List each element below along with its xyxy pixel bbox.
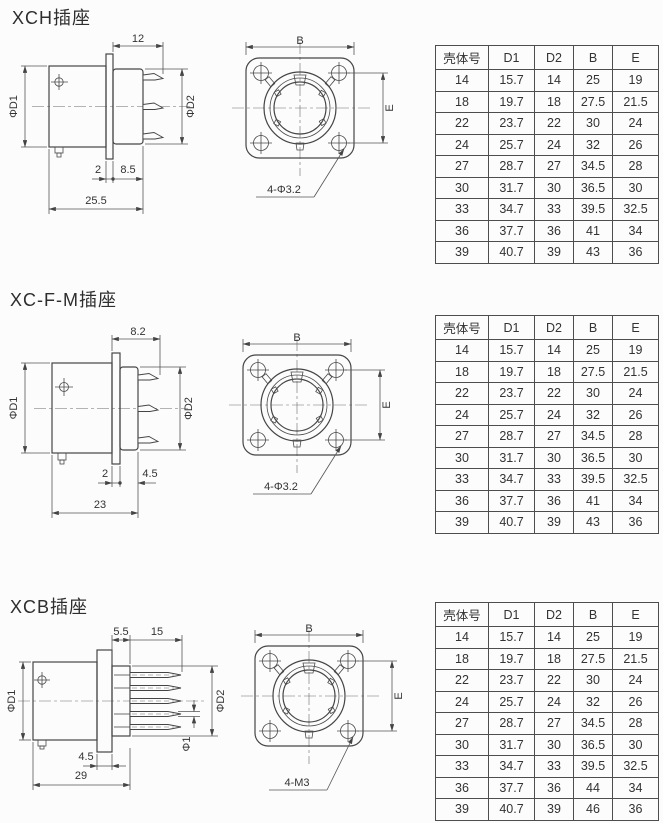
table-cell: 34: [613, 490, 659, 512]
column-header: E: [613, 316, 659, 340]
table-cell: 24: [535, 134, 574, 156]
table-cell: 36.5: [574, 447, 613, 469]
table-cell: 26: [613, 404, 659, 426]
table-row: 2728.72734.528: [436, 156, 659, 178]
table-cell: 23.7: [489, 383, 535, 405]
table-cell: 34.5: [574, 713, 613, 735]
table-cell: 15.7: [489, 340, 535, 362]
dim-d2: ΦD2: [183, 397, 195, 420]
table-cell: 44: [574, 777, 613, 799]
table-header-row: 壳体号D1D2BE: [436, 603, 659, 627]
xcb-dimension-table: 壳体号D1D2BE1415.71425191819.71827.521.5222…: [435, 602, 659, 821]
table-cell: 24: [535, 404, 574, 426]
table-cell: 32.5: [613, 199, 659, 221]
column-header: E: [613, 46, 659, 70]
table-row: 2728.72734.528: [436, 426, 659, 448]
table-row: 2223.7223024: [436, 670, 659, 692]
dim-mounting-holes: 4-Φ3.2: [264, 481, 298, 493]
dim-d2: ΦD2: [215, 690, 227, 713]
table-cell: 21.5: [613, 91, 659, 113]
dim-shell-depth: 12: [132, 33, 144, 45]
table-cell: 24: [436, 691, 489, 713]
dim-flange-thickness: 2: [95, 164, 101, 176]
table-cell: 26: [613, 134, 659, 156]
table-row: 2425.7243226: [436, 691, 659, 713]
table-cell: 14: [535, 70, 574, 92]
table-cell: 36: [436, 220, 489, 242]
table-cell: 36: [535, 777, 574, 799]
xcfm-front-view-drawing: B E 4-Φ3.2: [225, 333, 430, 518]
table-cell: 30: [574, 670, 613, 692]
contact-pins: [143, 74, 163, 140]
table-cell: 32: [574, 404, 613, 426]
table-cell: 19: [613, 70, 659, 92]
dim-total-length: 25.5: [85, 195, 106, 207]
table-row: 3940.7394636: [436, 799, 659, 821]
table-row: 1819.71827.521.5: [436, 648, 659, 670]
table-cell: 30: [535, 734, 574, 756]
dim-flange-width: B: [305, 623, 312, 635]
table-cell: 25.7: [489, 404, 535, 426]
xch-side-view-drawing: 12 ΦD1 ΦD2 2 8.5 25.5: [8, 30, 223, 230]
xcb-front-view-drawing: B E 4-M3: [237, 624, 442, 814]
table-header-row: 壳体号D1D2BE: [436, 46, 659, 70]
column-header: D1: [489, 603, 535, 627]
table-cell: 28.7: [489, 156, 535, 178]
column-header: E: [613, 603, 659, 627]
table-cell: 27: [436, 156, 489, 178]
table-cell: 41: [574, 220, 613, 242]
table-cell: 18: [535, 361, 574, 383]
dim-flange-thickness: 4.5: [78, 751, 93, 763]
table-cell: 36: [613, 242, 659, 264]
table-cell: 24: [535, 691, 574, 713]
table-cell: 39: [535, 799, 574, 821]
table-row: 1819.71827.521.5: [436, 91, 659, 113]
column-header: D2: [535, 316, 574, 340]
column-header: 壳体号: [436, 46, 489, 70]
table-row: 1415.7142519: [436, 340, 659, 362]
table-cell: 36: [436, 777, 489, 799]
dim-pin-diameter: Φ1: [181, 737, 193, 752]
table-cell: 33: [436, 199, 489, 221]
table-row: 1415.7142519: [436, 627, 659, 649]
table-cell: 34.7: [489, 469, 535, 491]
table-cell: 27: [436, 426, 489, 448]
table-cell: 19: [613, 627, 659, 649]
dim-pin-length: 15: [151, 626, 163, 638]
table-cell: 14: [436, 70, 489, 92]
dim-flange-width: B: [296, 35, 303, 47]
table-cell: 33: [535, 199, 574, 221]
table-cell: 43: [574, 242, 613, 264]
table-cell: 36: [436, 490, 489, 512]
table-cell: 27.5: [574, 648, 613, 670]
table-cell: 24: [436, 404, 489, 426]
table-header-row: 壳体号D1D2BE: [436, 316, 659, 340]
table-row: 3637.7364434: [436, 777, 659, 799]
table-row: 3637.7364134: [436, 220, 659, 242]
dim-mounting-holes: 4-M3: [284, 777, 309, 789]
xch-front-view-drawing: B E 4-Φ3.2: [228, 36, 433, 221]
table-row: 3031.73036.530: [436, 734, 659, 756]
table-cell: 33: [535, 756, 574, 778]
table-cell: 22: [535, 670, 574, 692]
table-cell: 40.7: [489, 242, 535, 264]
dim-rear-depth: 4.5: [142, 468, 157, 480]
dim-total-length: 23: [94, 499, 106, 511]
table-cell: 30: [574, 113, 613, 135]
solder-lug: [55, 147, 63, 153]
dim-mounting-holes: 4-Φ3.2: [267, 184, 301, 196]
table-cell: 34: [613, 220, 659, 242]
table-cell: 22: [535, 113, 574, 135]
table-cell: 39: [535, 242, 574, 264]
column-header: 壳体号: [436, 316, 489, 340]
solder-lug: [58, 453, 66, 460]
table-cell: 34.5: [574, 426, 613, 448]
table-cell: 18: [436, 91, 489, 113]
xcfm-side-view-drawing: 8.2 ΦD1 ΦD2 2 4.5 23: [8, 315, 223, 530]
table-cell: 15.7: [489, 627, 535, 649]
table-cell: 24: [613, 113, 659, 135]
table-cell: 30: [535, 447, 574, 469]
table-cell: 34.7: [489, 199, 535, 221]
table-cell: 18: [436, 361, 489, 383]
table-cell: 21.5: [613, 361, 659, 383]
dim-flange-thickness: 2: [102, 468, 108, 480]
table-cell: 22: [535, 383, 574, 405]
dim-hole-spacing: E: [393, 692, 405, 699]
table-cell: 24: [436, 134, 489, 156]
table-row: 3334.73339.532.5: [436, 756, 659, 778]
table-row: 3940.7394336: [436, 242, 659, 264]
table-cell: 36.5: [574, 734, 613, 756]
section-title-xcb: XCB插座: [10, 593, 88, 619]
table-row: 1819.71827.521.5: [436, 361, 659, 383]
table-cell: 36: [613, 799, 659, 821]
dim-d1: ΦD1: [8, 397, 20, 420]
table-cell: 14: [535, 627, 574, 649]
table-cell: 28: [613, 156, 659, 178]
table-cell: 14: [436, 627, 489, 649]
table-cell: 37.7: [489, 777, 535, 799]
table-cell: 31.7: [489, 177, 535, 199]
table-row: 2425.7243226: [436, 134, 659, 156]
xcfm-dimension-table: 壳体号D1D2BE1415.71425191819.71827.521.5222…: [435, 315, 659, 534]
table-cell: 31.7: [489, 734, 535, 756]
dim-d1: ΦD1: [6, 690, 18, 713]
table-cell: 24: [613, 670, 659, 692]
table-cell: 34: [613, 777, 659, 799]
column-header: B: [574, 603, 613, 627]
table-cell: 34.7: [489, 756, 535, 778]
table-row: 3031.73036.530: [436, 177, 659, 199]
column-header: D2: [535, 603, 574, 627]
dim-d2: ΦD2: [185, 95, 197, 118]
section-title-xch: XCH插座: [12, 4, 91, 30]
column-header: D1: [489, 316, 535, 340]
table-cell: 28: [613, 426, 659, 448]
table-cell: 32.5: [613, 756, 659, 778]
dim-shell-depth: 5.5: [113, 626, 128, 638]
table-cell: 36: [613, 512, 659, 534]
dim-flange-width: B: [293, 332, 300, 344]
table-cell: 26: [613, 691, 659, 713]
table-row: 3940.7394336: [436, 512, 659, 534]
table-cell: 32: [574, 134, 613, 156]
table-cell: 25: [574, 340, 613, 362]
table-cell: 23.7: [489, 113, 535, 135]
table-cell: 28.7: [489, 713, 535, 735]
xch-dimension-table: 壳体号D1D2BE1415.71425191819.71827.521.5222…: [435, 45, 659, 264]
table-cell: 33: [436, 756, 489, 778]
column-header: 壳体号: [436, 603, 489, 627]
table-cell: 40.7: [489, 512, 535, 534]
table-cell: 43: [574, 512, 613, 534]
table-cell: 15.7: [489, 70, 535, 92]
table-cell: 18: [535, 648, 574, 670]
table-row: 2425.7243226: [436, 404, 659, 426]
table-cell: 27: [535, 156, 574, 178]
table-cell: 27: [436, 713, 489, 735]
table-cell: 30: [535, 177, 574, 199]
dim-rear-depth: 8.5: [120, 164, 135, 176]
table-cell: 28: [613, 713, 659, 735]
table-cell: 27: [535, 426, 574, 448]
table-cell: 37.7: [489, 220, 535, 242]
table-cell: 33: [436, 469, 489, 491]
table-cell: 18: [535, 91, 574, 113]
table-cell: 21.5: [613, 648, 659, 670]
table-cell: 14: [535, 340, 574, 362]
table-cell: 41: [574, 490, 613, 512]
table-cell: 22: [436, 670, 489, 692]
column-header: D2: [535, 46, 574, 70]
table-cell: 30: [613, 177, 659, 199]
table-row: 2223.7223024: [436, 113, 659, 135]
table-row: 3334.73339.532.5: [436, 199, 659, 221]
table-cell: 32.5: [613, 469, 659, 491]
table-cell: 23.7: [489, 670, 535, 692]
table-cell: 25: [574, 627, 613, 649]
table-cell: 14: [436, 340, 489, 362]
table-row: 3637.7364134: [436, 490, 659, 512]
table-cell: 25.7: [489, 691, 535, 713]
dim-d1: ΦD1: [8, 95, 20, 118]
table-cell: 32: [574, 691, 613, 713]
table-cell: 27.5: [574, 361, 613, 383]
table-cell: 19.7: [489, 648, 535, 670]
table-cell: 27.5: [574, 91, 613, 113]
table-cell: 46: [574, 799, 613, 821]
table-cell: 39.5: [574, 756, 613, 778]
table-cell: 39: [436, 799, 489, 821]
table-cell: 22: [436, 113, 489, 135]
table-cell: 39.5: [574, 469, 613, 491]
table-cell: 40.7: [489, 799, 535, 821]
table-cell: 37.7: [489, 490, 535, 512]
table-cell: 30: [574, 383, 613, 405]
dim-hole-spacing: E: [384, 104, 396, 111]
table-row: 2223.7223024: [436, 383, 659, 405]
table-cell: 19.7: [489, 361, 535, 383]
table-cell: 30: [613, 447, 659, 469]
solder-lug: [38, 740, 46, 746]
xcb-side-view-drawing: 5.5 15 ΦD1 ΦD2 Φ1 4.5 29: [8, 618, 233, 808]
dim-total-length: 29: [75, 770, 87, 782]
table-row: 3334.73339.532.5: [436, 469, 659, 491]
table-cell: 39.5: [574, 199, 613, 221]
contact-pins: [138, 374, 158, 444]
table-cell: 28.7: [489, 426, 535, 448]
table-cell: 34.5: [574, 156, 613, 178]
table-row: 3031.73036.530: [436, 447, 659, 469]
table-cell: 36.5: [574, 177, 613, 199]
column-header: D1: [489, 46, 535, 70]
table-row: 2728.72734.528: [436, 713, 659, 735]
table-cell: 30: [436, 734, 489, 756]
table-row: 1415.7142519: [436, 70, 659, 92]
table-cell: 36: [535, 220, 574, 242]
table-cell: 18: [436, 648, 489, 670]
table-cell: 39: [436, 512, 489, 534]
section-title-xcfm: XC-F-M插座: [10, 286, 117, 312]
datasheet-page: XCH插座 12 ΦD1 ΦD2: [0, 0, 663, 823]
table-cell: 31.7: [489, 447, 535, 469]
table-cell: 27: [535, 713, 574, 735]
connector-body: [52, 363, 112, 453]
column-header: B: [574, 316, 613, 340]
table-cell: 22: [436, 383, 489, 405]
column-header: B: [574, 46, 613, 70]
table-cell: 24: [613, 383, 659, 405]
table-cell: 19.7: [489, 91, 535, 113]
table-cell: 33: [535, 469, 574, 491]
dim-shell-depth: 8.2: [130, 326, 145, 338]
dim-hole-spacing: E: [381, 401, 393, 408]
table-cell: 39: [535, 512, 574, 534]
table-cell: 25.7: [489, 134, 535, 156]
table-cell: 30: [436, 177, 489, 199]
table-cell: 39: [436, 242, 489, 264]
table-cell: 30: [436, 447, 489, 469]
table-cell: 19: [613, 340, 659, 362]
table-cell: 36: [535, 490, 574, 512]
table-cell: 25: [574, 70, 613, 92]
table-cell: 30: [613, 734, 659, 756]
